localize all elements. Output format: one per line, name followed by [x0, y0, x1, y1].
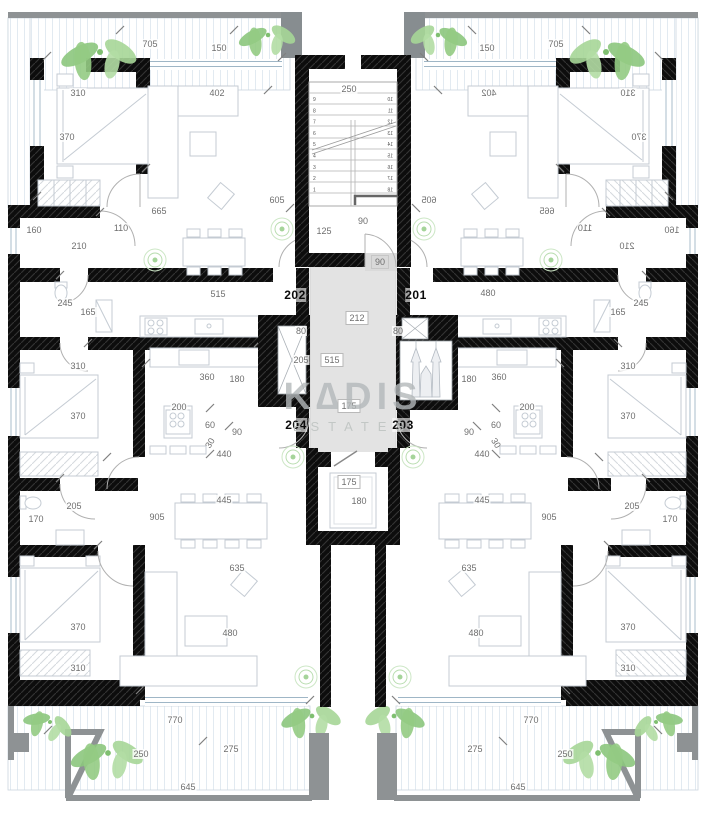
- stair-step-number: 12: [387, 120, 393, 126]
- stair-step-number: 3: [313, 165, 316, 171]
- corridor: [310, 265, 396, 452]
- stair-step-number: 16: [387, 165, 393, 171]
- staircase: 987654321 101112131415161718: [295, 55, 411, 271]
- floor-plan-drawing: 987654321 101112131415161718: [0, 0, 706, 820]
- stair-step-number: 11: [388, 108, 393, 114]
- stair-step-number: 6: [313, 131, 316, 137]
- stair-step-number: 4: [313, 154, 316, 160]
- stair-step-number: 10: [387, 97, 393, 103]
- service-shaft: [258, 315, 310, 407]
- elevator-shaft: [396, 315, 458, 410]
- stair-step-number: 7: [313, 120, 316, 126]
- stair-step-number: 2: [313, 176, 316, 182]
- duct-shaft: [306, 448, 400, 800]
- floor-plan: 987654321 101112131415161718: [0, 0, 706, 820]
- stair-step-number: 9: [313, 97, 316, 103]
- stair-step-number: 8: [313, 108, 316, 114]
- stair-step-number: 5: [313, 142, 316, 148]
- central-core: 987654321 101112131415161718: [258, 55, 458, 800]
- stair-step-number: 17: [387, 176, 393, 182]
- stair-numbers-left: 987654321: [313, 97, 316, 193]
- stair-step-number: 15: [387, 154, 393, 160]
- stair-step-number: 1: [313, 187, 316, 193]
- stair-step-number: 18: [387, 187, 393, 193]
- stair-step-number: 13: [387, 131, 393, 137]
- stair-numbers-right: 101112131415161718: [387, 97, 393, 193]
- stair-step-number: 14: [387, 142, 393, 148]
